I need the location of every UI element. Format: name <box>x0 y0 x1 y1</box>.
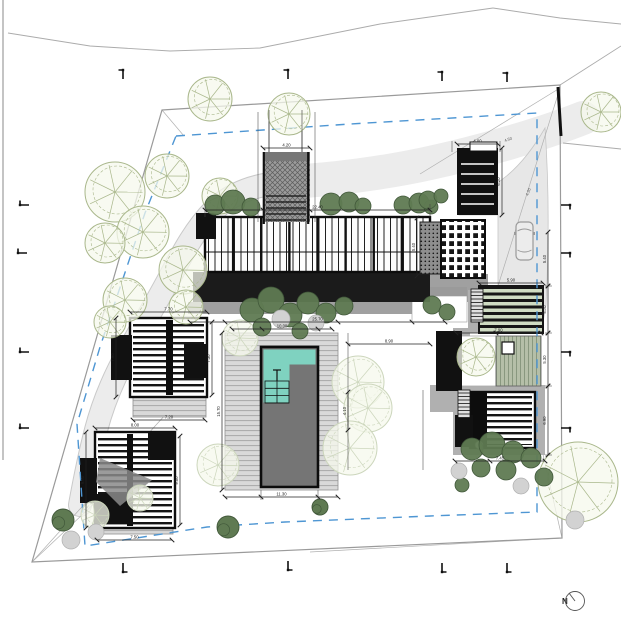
bridge-landing <box>263 152 310 161</box>
dim-label: 9.00 <box>174 476 179 485</box>
dim-label: 5.30 <box>542 355 547 364</box>
dim-label: 5.90 <box>507 278 516 283</box>
tree-icon <box>581 92 621 132</box>
dim-label: 5.40 <box>411 242 416 251</box>
outdoor-table <box>502 342 514 354</box>
gray-shrub-icon <box>566 511 584 529</box>
building-spine <box>166 320 173 395</box>
entry-bridge <box>263 152 310 222</box>
tree-icon <box>222 320 258 356</box>
tree-icon <box>117 206 169 258</box>
tree-icon <box>94 306 126 338</box>
tree-icon <box>188 77 232 121</box>
shrub-icon <box>423 296 441 314</box>
dim-label: 8.00 <box>131 423 140 428</box>
section-marker-icon <box>442 563 447 572</box>
dim-label: 8.90 <box>385 339 394 344</box>
shrub-icon <box>297 292 319 314</box>
dim-label: 7.20 <box>165 415 174 420</box>
tree-icon <box>323 421 377 475</box>
section-marker-icon <box>561 253 570 258</box>
section-marker-dot <box>17 252 19 254</box>
road-line <box>493 8 621 24</box>
section-marker-icon <box>561 352 570 357</box>
road-line <box>560 46 621 85</box>
dim-label: 7.50 <box>130 535 139 540</box>
dim-label: 9.60 <box>80 475 85 484</box>
car-icon <box>514 222 535 260</box>
dim-label: 6.90 <box>542 416 547 425</box>
section-marker-dot <box>287 569 289 571</box>
car-mirror <box>533 232 535 235</box>
section-marker-icon <box>20 201 29 206</box>
section-marker-icon <box>561 205 570 210</box>
stair-run <box>471 289 483 322</box>
gray-shrub-icon <box>88 524 104 540</box>
garage-block <box>457 148 498 215</box>
section-marker-dot <box>19 427 21 429</box>
building-solid <box>148 432 175 460</box>
road-line <box>563 143 621 149</box>
section-marker-dot <box>122 571 124 573</box>
north-needle-icon <box>569 593 575 601</box>
pergola-slats <box>479 286 543 333</box>
shrub-icon <box>535 468 553 486</box>
section-marker-icon <box>20 424 29 429</box>
building-solid <box>184 344 207 378</box>
section-marker-dot <box>506 72 508 74</box>
dim-label: 5.40 <box>542 254 547 263</box>
section-marker-dot <box>569 351 571 353</box>
site-plan-drawing: 4.504.20 22.404.204.006.205.404.705.306.… <box>0 0 621 628</box>
dim-label: 4.10 <box>342 406 347 415</box>
shrub-icon <box>355 198 371 214</box>
dim-label: 7.30 <box>206 354 211 363</box>
pool-shallow <box>264 350 316 365</box>
dim-label: 10.00 <box>277 324 288 329</box>
section-marker-icon <box>507 563 512 572</box>
section-marker-dot <box>441 71 443 73</box>
section-marker-dot <box>569 204 571 206</box>
shrub-icon <box>479 432 505 458</box>
section-marker-icon <box>123 563 128 572</box>
bush <box>218 524 230 536</box>
shrub-icon <box>292 323 308 339</box>
tree-icon <box>85 223 125 263</box>
section-marker-icon <box>18 249 27 254</box>
dim-label: 25.70 <box>312 317 323 322</box>
tree-icon <box>197 444 239 486</box>
section-marker-dot <box>506 571 508 573</box>
tree-icon <box>159 246 207 294</box>
tree-icon <box>127 485 153 511</box>
bush-tree-icon <box>217 516 239 538</box>
dim-label: 7.70 <box>164 307 173 312</box>
section-marker-icon <box>119 70 124 79</box>
shrub-icon <box>434 189 448 203</box>
car-body <box>516 222 533 260</box>
dim-label: 15.70 <box>216 406 221 417</box>
tree-icon <box>145 154 189 198</box>
dim-label: 6.20 <box>496 177 501 186</box>
dim-label: 4.70 <box>542 305 547 314</box>
road-line <box>8 8 493 51</box>
section-marker-dot <box>19 204 21 206</box>
shrub-icon <box>496 460 516 480</box>
shrub-icon <box>472 459 490 477</box>
section-marker-dot <box>441 571 443 573</box>
tree-icon <box>268 93 310 135</box>
gray-shrub-icon <box>62 531 80 549</box>
dim-label: 4.00 <box>473 139 482 144</box>
shrub-icon <box>521 448 541 468</box>
section-marker-icon <box>561 428 570 433</box>
gray-shrub-icon <box>513 478 529 494</box>
gray-shrub-icon <box>451 463 467 479</box>
car-mirror <box>514 232 516 235</box>
shrub-icon <box>253 318 271 336</box>
shrub-icon <box>335 297 353 315</box>
dim-label: 7.90 <box>494 328 503 333</box>
east-rooms <box>441 220 485 278</box>
survey-line <box>162 110 184 136</box>
shrub-icon <box>455 478 469 492</box>
section-marker-icon <box>438 72 443 81</box>
dim-label: 22.40 <box>312 205 323 210</box>
building-solid <box>196 213 216 239</box>
section-marker-icon <box>284 70 289 79</box>
section-marker-dot <box>569 427 571 429</box>
bush-tree-icon <box>52 509 74 531</box>
tree-icon <box>457 338 495 376</box>
section-marker-dot <box>569 252 571 254</box>
section-marker-dot <box>287 69 289 71</box>
dim-label: 7.45 <box>496 456 505 461</box>
dim-label: 11.30 <box>276 492 287 497</box>
section-marker-dot <box>19 351 21 353</box>
shrub-icon <box>439 304 455 320</box>
section-marker-icon <box>503 73 508 82</box>
shrub-icon <box>221 190 245 214</box>
site-plan-canvas: 4.504.20 22.404.204.006.205.404.705.306.… <box>0 0 621 628</box>
dim-label: 7.90 <box>110 353 115 362</box>
section-marker-icon <box>288 561 293 570</box>
section-marker-icon <box>20 348 29 353</box>
bush <box>53 517 65 529</box>
tree-icon <box>169 290 203 324</box>
dim-label: 4.20 <box>282 143 291 148</box>
shrub-icon <box>320 193 342 215</box>
north-arrow: N <box>562 592 585 611</box>
bush <box>312 505 321 514</box>
shrub-icon <box>242 198 260 216</box>
bush-tree-icon <box>312 499 328 515</box>
section-marker-dot <box>122 69 124 71</box>
north-label: N <box>562 597 568 606</box>
